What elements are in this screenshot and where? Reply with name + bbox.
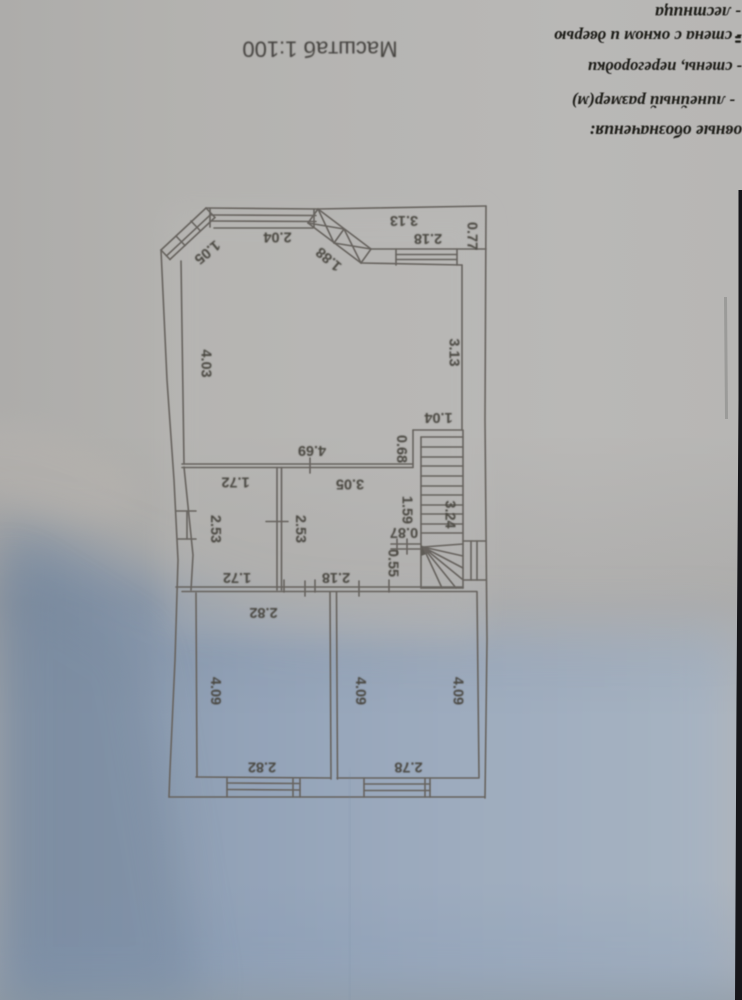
svg-text:- линейный размер(м): - линейный размер(м) (572, 92, 735, 111)
svg-text:2.18: 2.18 (414, 230, 442, 246)
svg-text:2.53: 2.53 (207, 515, 223, 543)
svg-text:4.09: 4.09 (352, 677, 368, 705)
svg-text:0.55: 0.55 (385, 549, 401, 577)
svg-text:2.78: 2.78 (394, 759, 422, 775)
svg-text:4.09: 4.09 (207, 677, 223, 705)
svg-text:- стены, перегородки: - стены, перегородки (588, 58, 742, 77)
svg-text:3.13: 3.13 (446, 338, 462, 366)
svg-text:2.04: 2.04 (263, 229, 291, 245)
svg-text:0.87: 0.87 (390, 524, 418, 540)
svg-text:0.77: 0.77 (464, 222, 480, 250)
svg-text:4.03: 4.03 (198, 349, 214, 377)
svg-text:овные обозначения:: овные обозначения: (589, 122, 742, 142)
svg-text:2.82: 2.82 (248, 759, 276, 775)
svg-text:1.04: 1.04 (424, 409, 452, 425)
svg-text:1.72: 1.72 (223, 569, 251, 585)
svg-text:4.09: 4.09 (450, 677, 466, 705)
svg-text:2.53: 2.53 (292, 515, 308, 543)
svg-text:3.05: 3.05 (336, 476, 364, 492)
svg-text:2.18: 2.18 (322, 569, 350, 585)
svg-text:0.68: 0.68 (393, 435, 409, 463)
svg-text:1.59: 1.59 (399, 496, 415, 524)
svg-text:- лестница: - лестница (655, 3, 741, 23)
svg-text:3.24: 3.24 (442, 500, 458, 528)
svg-text:- стена с окном и дверью: - стена с окном и дверью (554, 27, 742, 46)
svg-text:2.82: 2.82 (249, 604, 277, 620)
svg-text:Масштаб 1:100: Масштаб 1:100 (242, 37, 397, 62)
svg-text:4.69: 4.69 (298, 442, 326, 458)
svg-text:3.13: 3.13 (390, 212, 418, 228)
svg-text:1.72: 1.72 (221, 474, 249, 490)
